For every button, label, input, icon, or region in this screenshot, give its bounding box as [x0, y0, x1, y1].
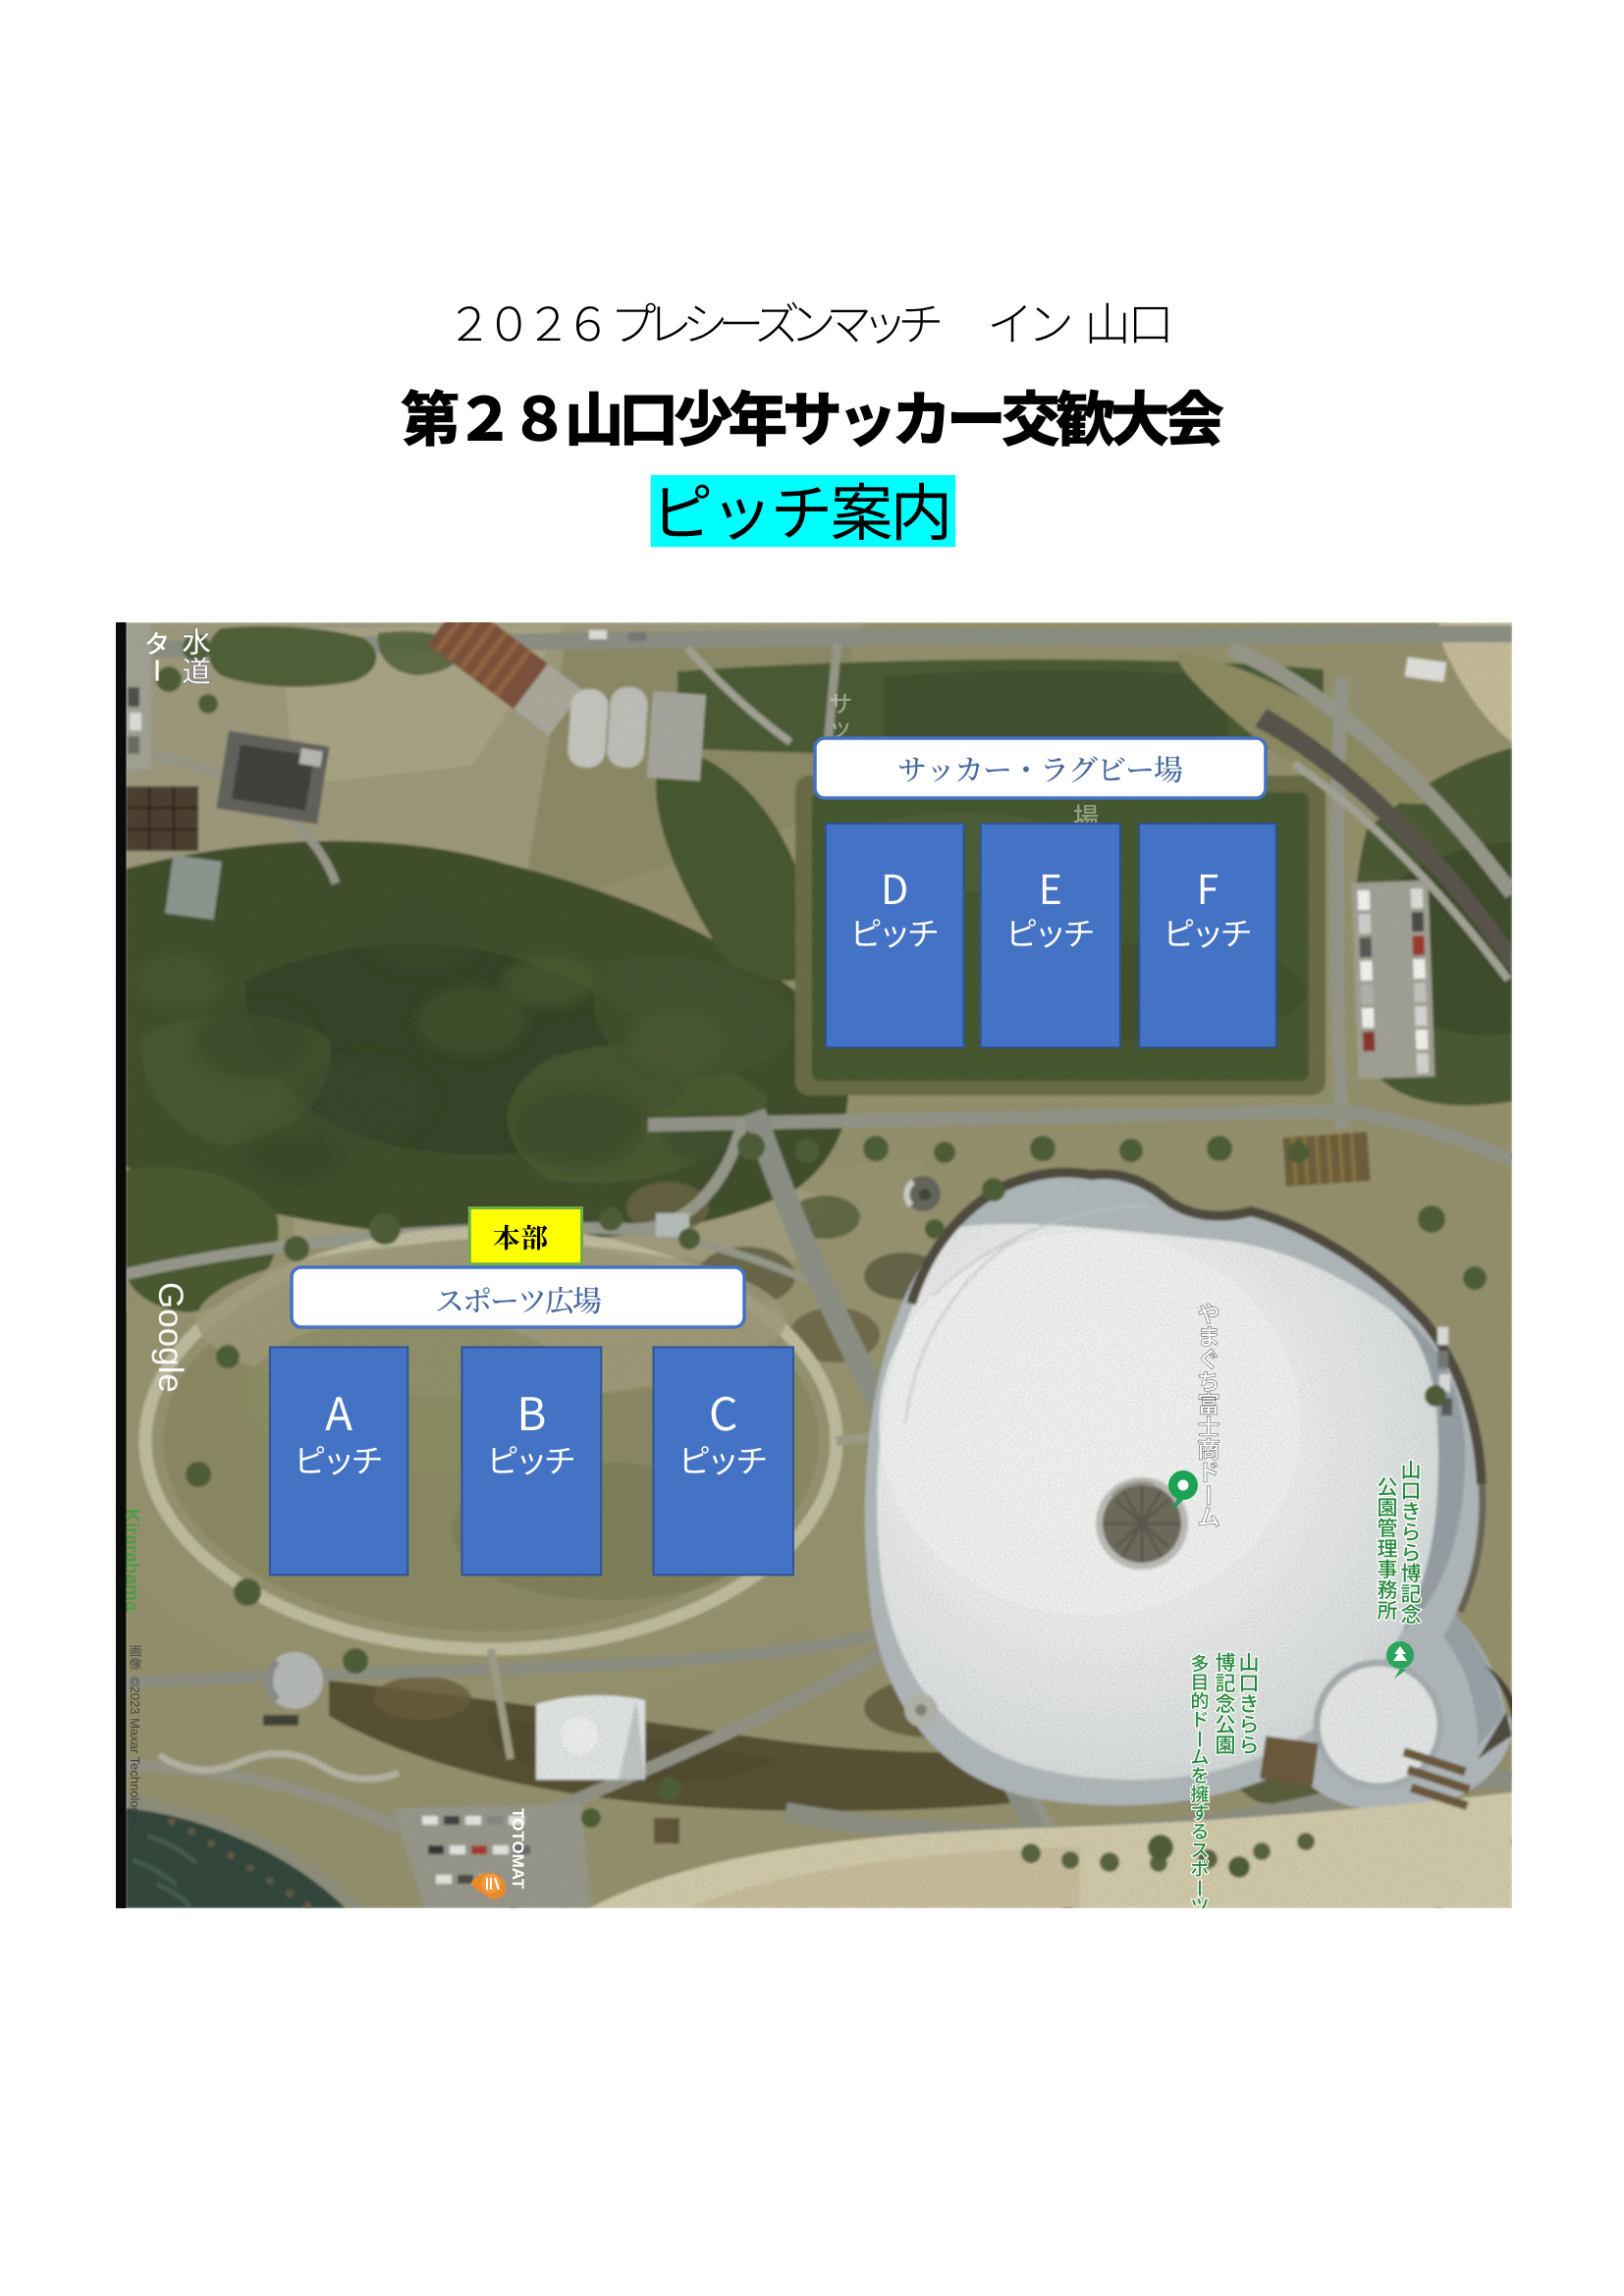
svg-text:©2023 Maxar Technologies,: ©2023 Maxar Technologies,: [128, 1677, 142, 1835]
svg-text:TOTOMAT: TOTOMAT: [509, 1808, 527, 1890]
svg-text:Google: Google: [151, 1282, 189, 1393]
